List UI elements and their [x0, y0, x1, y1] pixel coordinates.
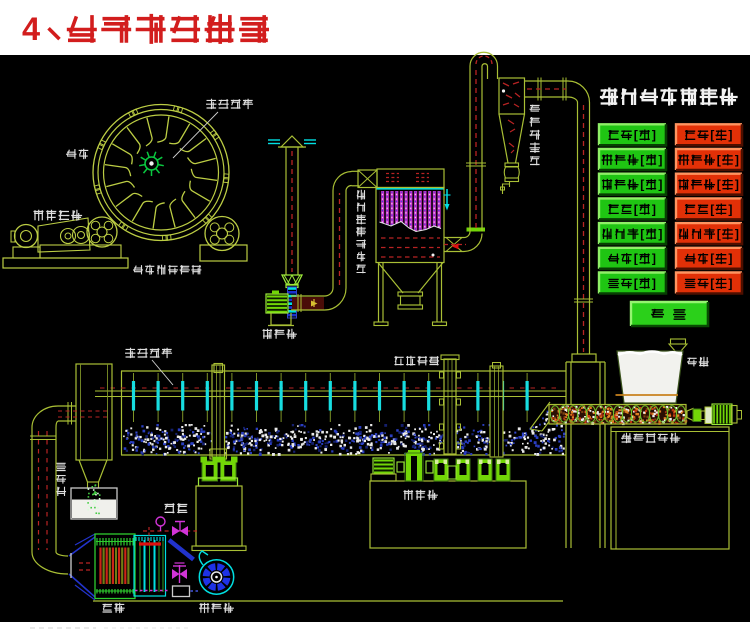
svg-text:[: [: [640, 153, 644, 167]
svg-text:]: ]: [652, 202, 656, 216]
svg-text:[: [: [634, 128, 638, 142]
svg-text:[: [: [710, 202, 714, 216]
svg-text:[: [: [710, 276, 714, 290]
svg-text:]: ]: [728, 202, 732, 216]
svg-text:]: ]: [735, 178, 739, 192]
svg-text:[: [: [710, 252, 714, 266]
svg-text:[: [: [634, 202, 638, 216]
svg-text:[: [: [717, 227, 721, 241]
svg-text:]: ]: [652, 252, 656, 266]
svg-text:[: [: [634, 252, 638, 266]
svg-text:]: ]: [735, 227, 739, 241]
svg-text:]: ]: [728, 276, 732, 290]
svg-text:]: ]: [652, 276, 656, 290]
svg-text:]: ]: [658, 178, 662, 192]
svg-text:]: ]: [728, 128, 732, 142]
svg-text:]: ]: [658, 227, 662, 241]
svg-text:]: ]: [658, 153, 662, 167]
svg-text:]: ]: [728, 252, 732, 266]
svg-text:[: [: [640, 227, 644, 241]
svg-text:]: ]: [735, 153, 739, 167]
svg-text:[: [: [640, 178, 644, 192]
svg-text:[: [: [634, 276, 638, 290]
svg-text:[: [: [710, 128, 714, 142]
svg-text:4: 4: [22, 11, 40, 47]
svg-text:[: [: [717, 153, 721, 167]
svg-text:]: ]: [652, 128, 656, 142]
svg-text:[: [: [717, 178, 721, 192]
